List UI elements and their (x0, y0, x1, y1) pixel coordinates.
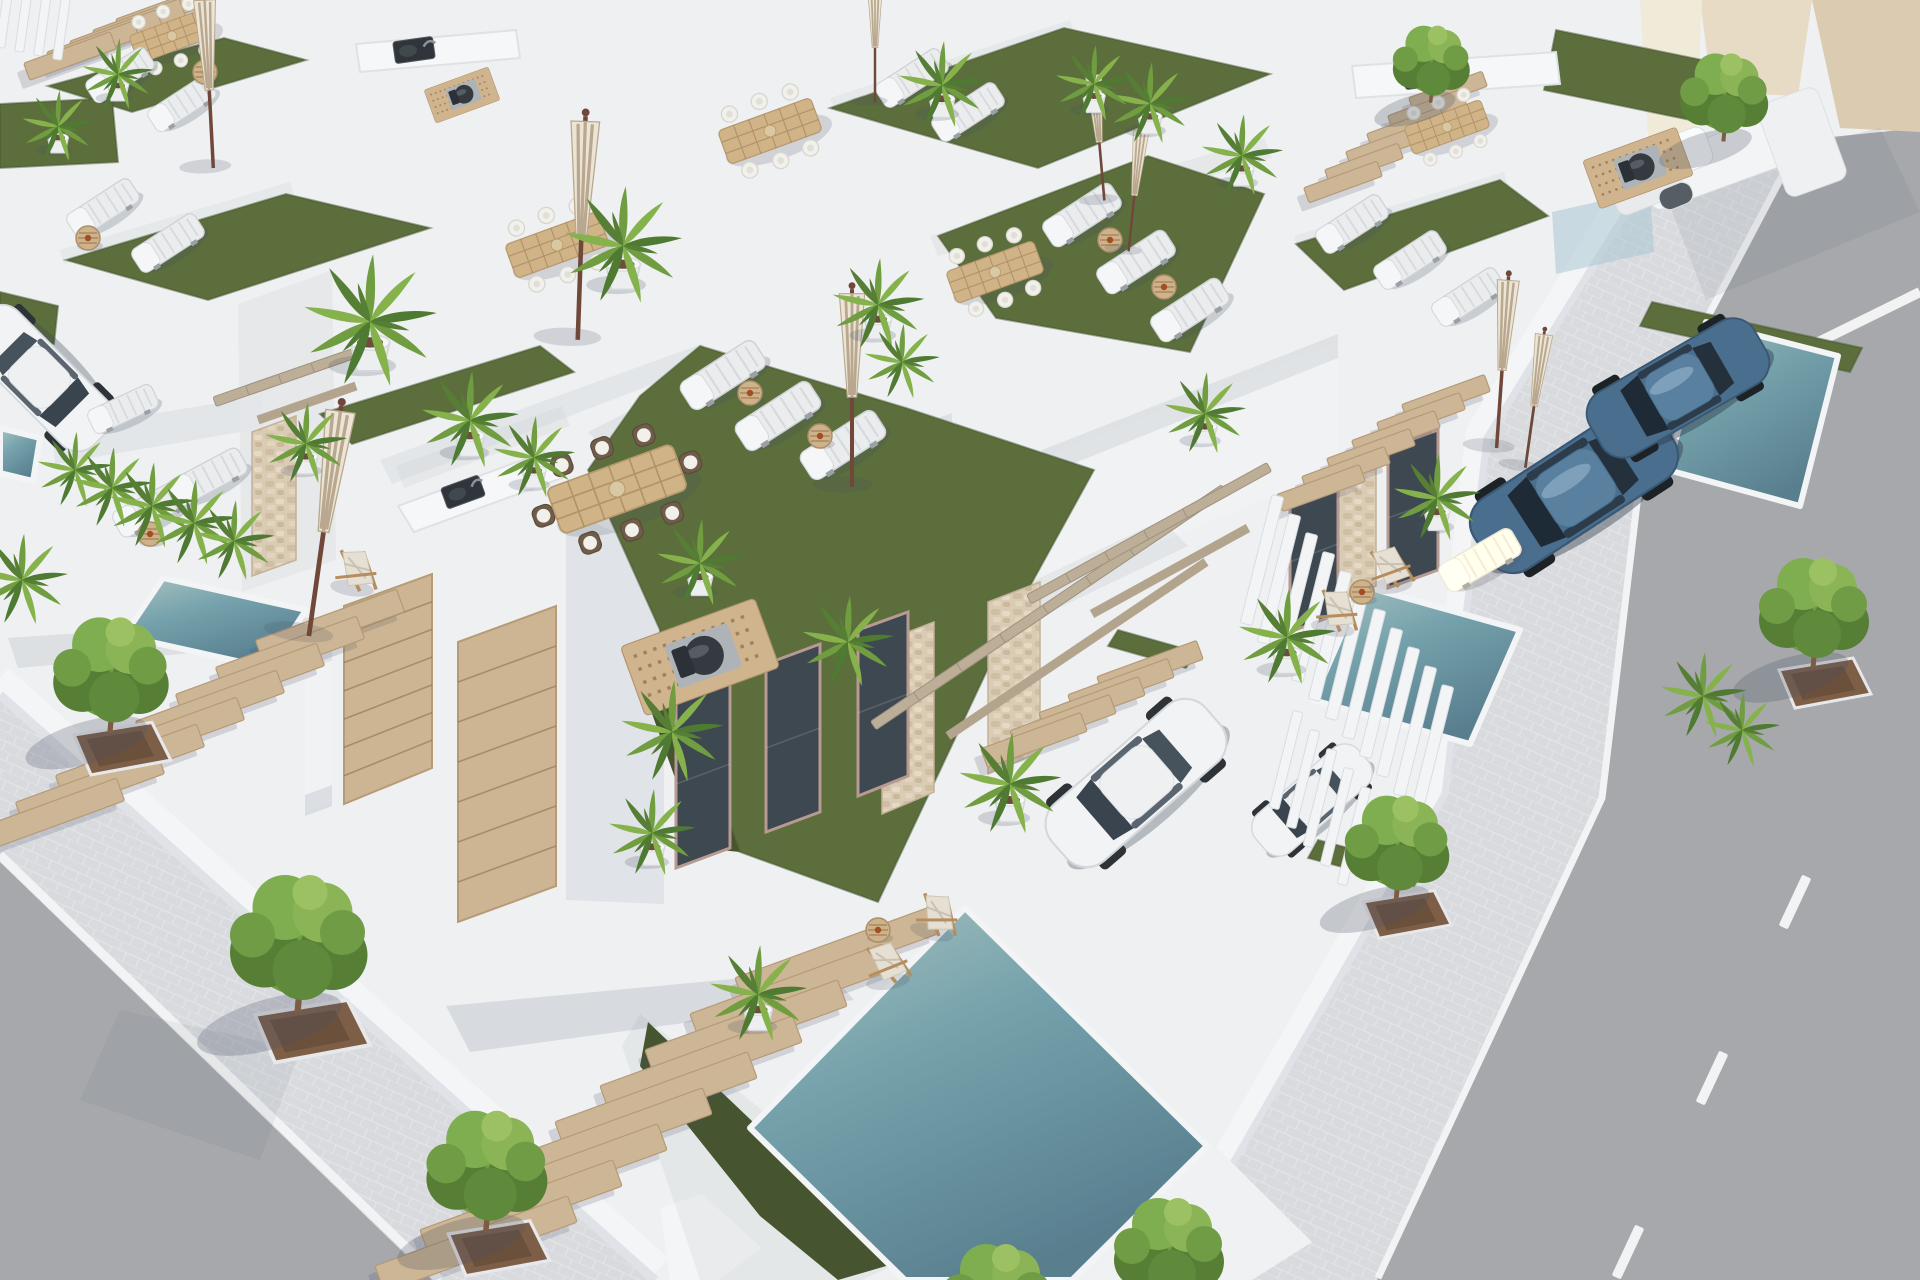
wood-slat-door (458, 606, 556, 922)
aerial-architectural-render (0, 0, 1920, 1280)
pool-water (0, 428, 40, 481)
render-canvas (0, 0, 1920, 1280)
